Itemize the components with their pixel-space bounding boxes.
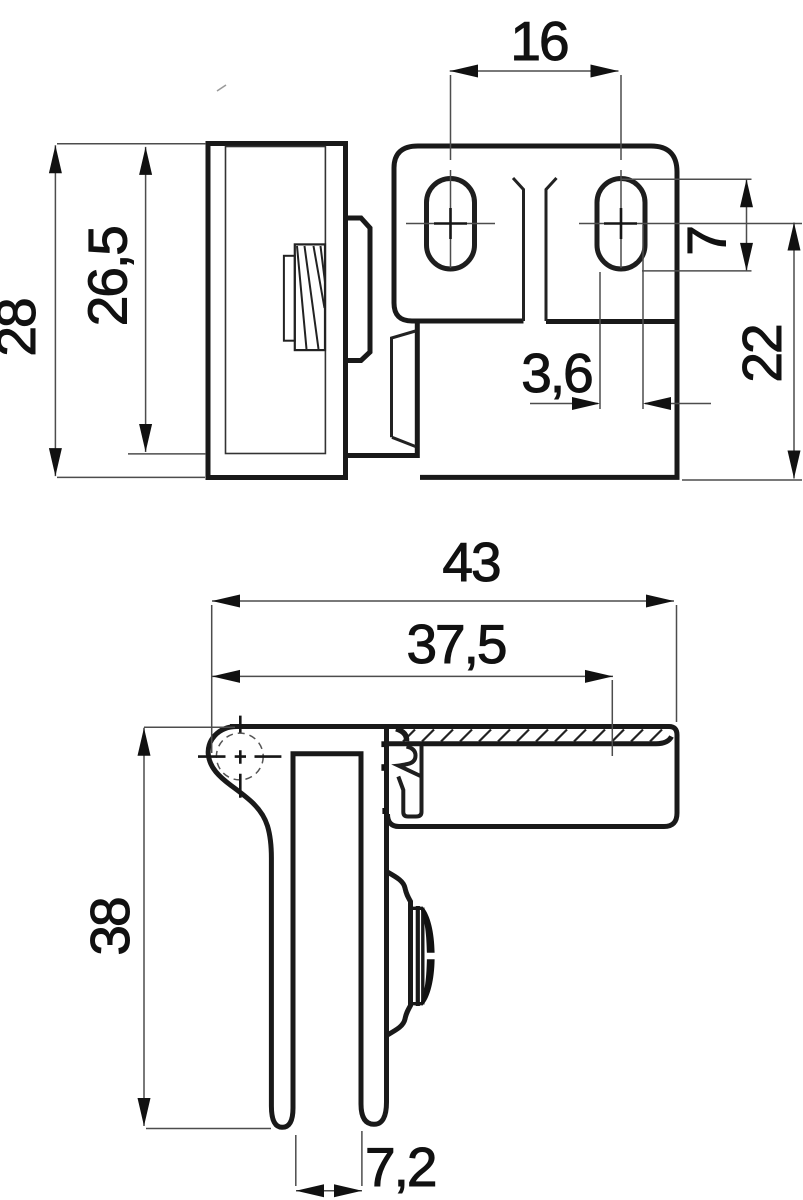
svg-text:7,2: 7,2: [365, 1136, 435, 1198]
svg-text:3,6: 3,6: [521, 342, 592, 404]
svg-text:28: 28: [0, 299, 47, 357]
svg-text:26,5: 26,5: [77, 227, 139, 326]
svg-text:38: 38: [79, 898, 141, 956]
svg-text:16: 16: [510, 10, 568, 72]
svg-text:43: 43: [442, 531, 500, 593]
svg-text:22: 22: [731, 325, 793, 382]
svg-text:37,5: 37,5: [406, 613, 505, 675]
svg-text:7: 7: [676, 227, 738, 256]
